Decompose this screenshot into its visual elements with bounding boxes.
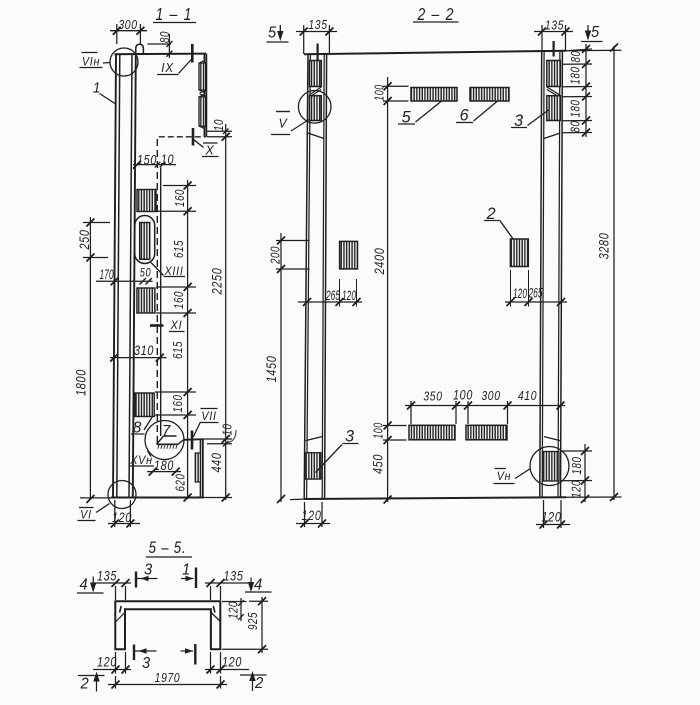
svg-text:1 – 1: 1 – 1 [155,5,192,24]
svg-text:5: 5 [268,24,277,41]
svg-text:350: 350 [423,390,442,404]
svg-text:135: 135 [308,18,327,32]
svg-text:200: 200 [270,246,284,265]
svg-text:7: 7 [162,422,172,439]
svg-text:1: 1 [182,561,191,578]
svg-text:170: 170 [100,268,115,282]
svg-text:120: 120 [342,289,357,303]
svg-text:1800: 1800 [73,369,89,396]
svg-text:410: 410 [518,389,537,403]
svg-text:X: X [205,143,215,157]
svg-text:120: 120 [571,480,585,498]
svg-text:450: 450 [370,454,386,474]
svg-text:4: 4 [254,576,263,593]
svg-text:VI: VI [80,509,92,522]
svg-text:80: 80 [569,120,582,132]
svg-text:135: 135 [224,568,244,583]
svg-text:6: 6 [460,105,470,124]
svg-text:VII: VII [201,410,216,423]
svg-text:3: 3 [345,426,355,445]
svg-text:2: 2 [254,675,264,692]
svg-text:80: 80 [570,50,583,62]
svg-text:VІн: VІн [82,56,100,69]
svg-text:180: 180 [571,456,585,474]
svg-text:10: 10 [221,423,234,435]
svg-text:100: 100 [373,84,387,100]
svg-text:120: 120 [228,601,242,619]
svg-text:XI: XI [170,319,183,332]
svg-text:120: 120 [222,654,242,669]
svg-text:Vн: Vн [497,470,512,483]
svg-text:300: 300 [481,389,500,403]
svg-text:150: 150 [137,152,157,167]
svg-text:160: 160 [172,394,186,412]
svg-text:135: 135 [97,568,117,583]
svg-text:160: 160 [174,189,188,207]
svg-text:2400: 2400 [372,248,388,276]
svg-text:5: 5 [591,24,600,41]
svg-text:100: 100 [372,422,386,438]
svg-text:10: 10 [213,119,226,131]
svg-text:160: 160 [173,291,187,309]
svg-text:620: 620 [175,473,189,491]
svg-text:4: 4 [80,576,89,593]
svg-text:2: 2 [80,675,90,692]
svg-text:925: 925 [247,612,261,630]
svg-text:V: V [279,116,289,130]
svg-text:440: 440 [209,452,225,472]
svg-text:5 – 5.: 5 – 5. [149,539,187,558]
svg-text:1450: 1450 [264,356,280,383]
svg-text:100: 100 [453,387,473,402]
svg-text:180: 180 [154,458,174,473]
svg-text:615: 615 [173,240,187,258]
svg-text:135: 135 [545,19,564,33]
svg-text:3: 3 [142,655,151,672]
svg-text:80: 80 [159,31,172,43]
svg-text:180: 180 [569,99,582,117]
svg-text:XVн: XVн [129,454,152,467]
svg-text:2250: 2250 [209,268,225,296]
svg-text:180: 180 [569,66,582,84]
svg-text:265: 265 [528,287,543,301]
svg-text:310: 310 [134,343,154,358]
svg-text:IX: IX [161,61,173,76]
svg-text:3280: 3280 [596,233,612,260]
svg-text:1970: 1970 [155,671,181,685]
svg-text:120: 120 [97,654,117,669]
svg-text:265: 265 [325,289,340,303]
svg-text:250: 250 [77,229,93,250]
svg-text:615: 615 [172,341,186,359]
svg-text:120: 120 [513,287,528,301]
